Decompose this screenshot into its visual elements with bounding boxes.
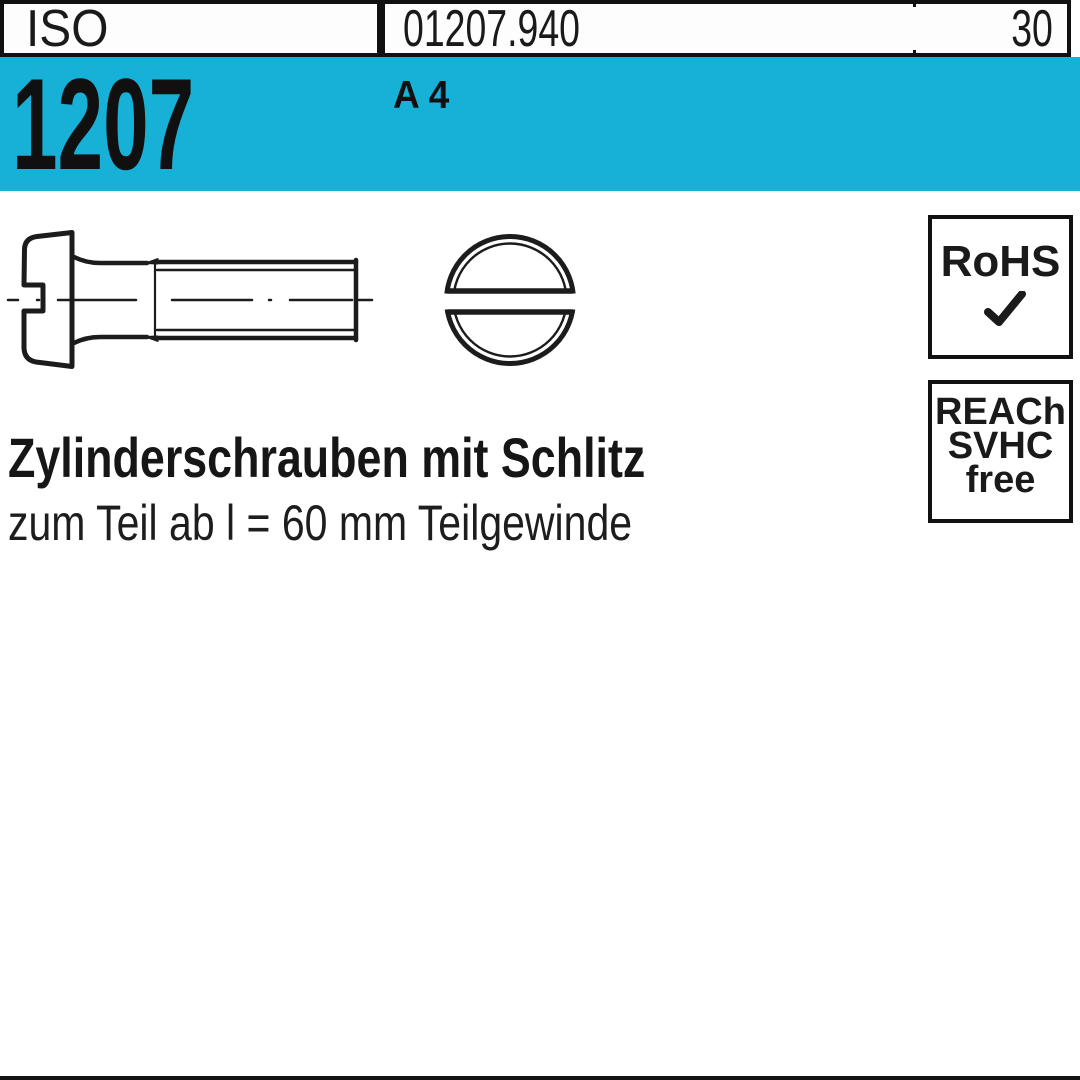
standard-number: 1207 (12, 59, 194, 189)
reach-line3: free (932, 463, 1069, 497)
screw-side-view (8, 233, 372, 367)
header-divider-tick-top (913, 1, 916, 7)
material-grade: A 4 (393, 76, 449, 115)
reach-line1: REACh (932, 395, 1069, 429)
bottom-edge-strip (0, 1076, 1080, 1080)
reach-badge: REACh SVHC free (928, 380, 1073, 523)
article-number: 01207.940 (403, 3, 580, 55)
product-subtitle: zum Teil ab l = 60 mm Teilgewinde (8, 496, 632, 551)
header-divider-tick-bottom (913, 50, 916, 57)
article-number-box: 01207.940 30 (381, 0, 1071, 57)
iso-label-box: ISO (0, 0, 381, 57)
rohs-label: RoHS (932, 240, 1069, 284)
rohs-badge: RoHS (928, 215, 1073, 359)
page-number: 30 (1011, 3, 1053, 55)
product-title: Zylinderschrauben mit Schlitz (8, 427, 645, 489)
check-icon (984, 291, 1026, 329)
screw-top-view (444, 237, 576, 364)
iso-label: ISO (26, 3, 108, 55)
standard-banner: 1207 A 4 (0, 57, 1080, 191)
reach-line2: SVHC (932, 429, 1069, 463)
screw-technical-drawing (0, 195, 600, 415)
